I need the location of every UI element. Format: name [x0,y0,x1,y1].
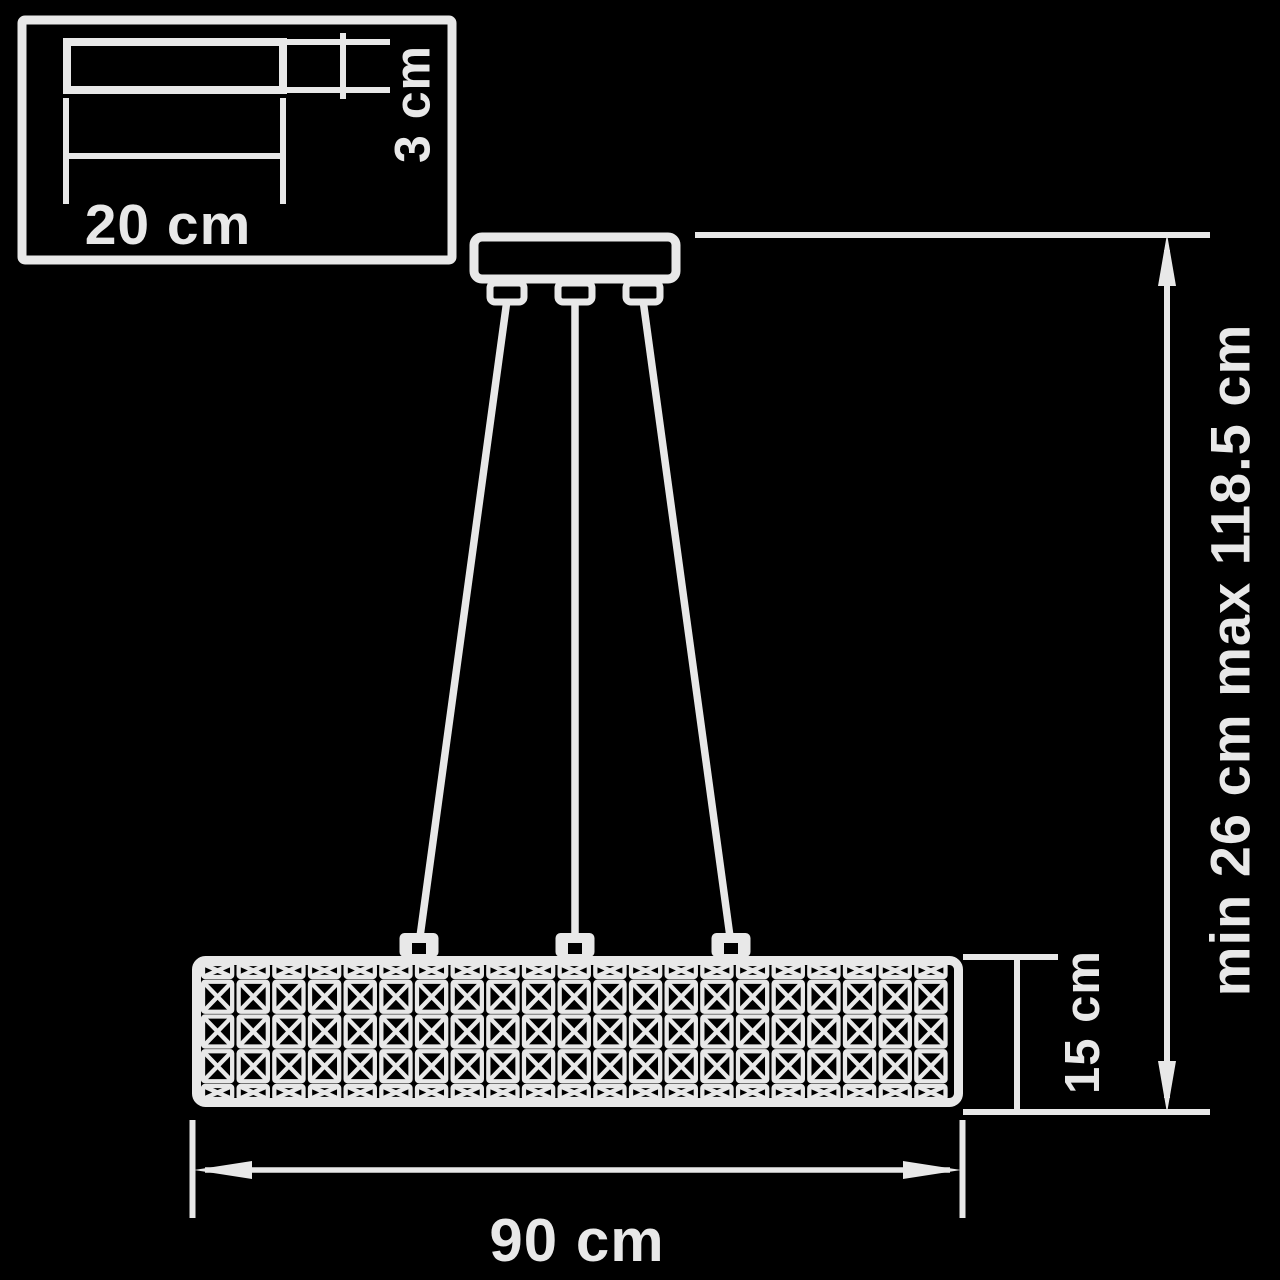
diagram-page: 3 cm 20 cm [0,0,1280,1280]
mount-width-label: 20 cm [85,193,252,257]
shade-width-label: 90 cm [489,1207,664,1274]
bracket-slot [412,943,426,954]
pendant-lamp-diagram: 3 cm 20 cm [0,0,1280,1280]
shade-height-label: 15 cm [1056,950,1110,1094]
bracket-slot [568,943,582,954]
shade-bracket-center [556,933,595,957]
bracket-slot [724,943,738,954]
shade-bracket-right [712,933,751,957]
shade-bracket-left [400,933,439,957]
mount-height-label: 3 cm [385,45,441,163]
overall-height-label: min 26 cm max 118.5 cm [1199,324,1262,997]
